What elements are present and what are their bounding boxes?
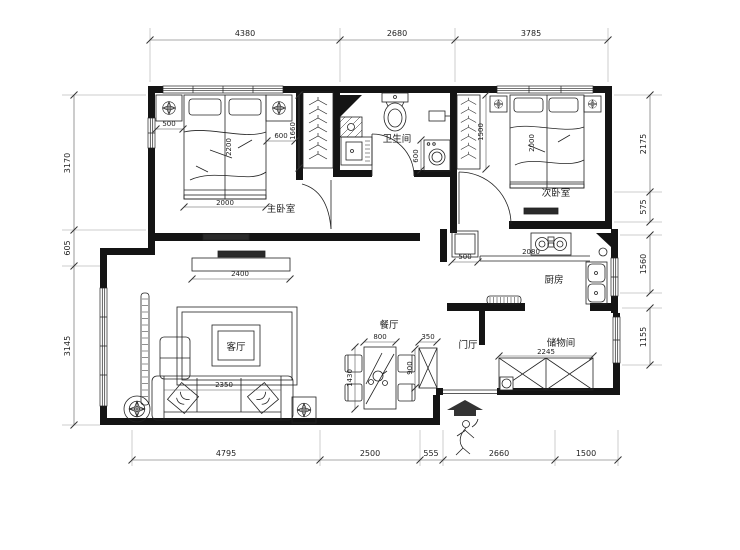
dim-master-wardrobe: 1660: [289, 122, 297, 140]
wall-entrance-left: [436, 388, 443, 395]
master-bedroom: [156, 92, 333, 240]
hanger-icon: [309, 97, 327, 105]
dim-washer: 600: [412, 149, 420, 162]
dim-secondary-bed: 2000: [528, 134, 536, 152]
dim-top-1: 4380: [235, 29, 255, 38]
kitchen-sink: [586, 262, 607, 304]
dim-kitchen-counter: 2080: [522, 248, 540, 256]
dim-dining-length: 1430: [346, 369, 354, 387]
counter-edge: [480, 256, 590, 261]
dim-master-bed-width: 2000: [216, 199, 234, 207]
window-master-north: [163, 86, 283, 93]
dim-left-1: 3170: [63, 153, 72, 173]
shower-corner: [340, 95, 362, 137]
nightstand-left: [490, 96, 507, 112]
dining-room: [345, 347, 437, 409]
wall-kitchen-west: [440, 229, 447, 262]
pillow: [514, 98, 543, 112]
dim-chain-top: [147, 28, 612, 82]
hanger-icon: [309, 142, 327, 150]
wall-corridor-south: [340, 233, 420, 241]
label-foyer: 门厅: [458, 339, 478, 351]
wall-bottom-right: [497, 388, 620, 395]
wall-entrance-step: [433, 395, 440, 425]
window-kitchen-east: [611, 258, 618, 296]
dim-top-3: 3785: [521, 29, 541, 38]
dim-bottom-5: 1500: [576, 449, 596, 458]
dim-left-3: 3145: [63, 336, 72, 356]
room-labels: 主卧室 卫生间 次卧室 厨房 客厅 餐厅 门厅 储物间: [226, 133, 575, 353]
wall-bath-east: [450, 93, 457, 233]
dim-bottom-3: 555: [423, 449, 438, 458]
ornament-rose-icon: [129, 401, 144, 416]
floor-plan-canvas: 4380 2680 3785 4795 2500 555 2660 1500 3…: [0, 0, 740, 550]
label-dining-room: 餐厅: [379, 319, 399, 331]
doors: [302, 134, 511, 455]
dim-foyer-cabinet-depth: 900: [406, 361, 414, 374]
wall-bottom-main: [100, 418, 440, 425]
hanger-icon: [461, 125, 476, 132]
label-living-room: 客厅: [226, 341, 246, 353]
dim-bottom-1: 4795: [216, 449, 236, 458]
master-tv: [203, 234, 249, 240]
dim-right-2: 575: [639, 199, 648, 214]
ornament-rose-icon: [273, 102, 286, 115]
living-tv: [218, 251, 265, 257]
secondary-bedroom: [457, 95, 601, 214]
dining-chairs: [345, 355, 415, 401]
hanger-icon: [309, 106, 327, 114]
hanger-icon: [461, 98, 476, 105]
label-bathroom: 卫生间: [383, 133, 412, 145]
storage-cabinets: [499, 358, 593, 390]
wall-secondary-south: [509, 221, 611, 229]
bathroom-sink: [341, 137, 372, 165]
sofa: [152, 337, 293, 420]
window-secondary-north: [497, 86, 593, 93]
dim-dining-width: 800: [373, 333, 386, 341]
window-storage-east: [613, 317, 620, 363]
sofa-pillow: [168, 383, 199, 414]
dim-sofa: 2350: [215, 381, 233, 389]
dim-left-2: 605: [63, 240, 72, 255]
label-master-bedroom: 主卧室: [267, 203, 296, 215]
ornament-rose-icon: [494, 100, 502, 108]
hanger-icon: [309, 115, 327, 123]
secondary-bed: [510, 95, 584, 188]
hanger-icon: [309, 124, 327, 132]
wall-bath-west: [333, 93, 340, 177]
pillow: [229, 99, 261, 115]
hanger-icon: [309, 151, 327, 159]
corner-cabinet: [596, 233, 611, 256]
hanger-icon: [461, 152, 476, 159]
wall-heater: [429, 111, 450, 121]
label-kitchen: 厨房: [544, 274, 563, 286]
foyer-cabinet: [419, 348, 437, 388]
entrance-figure-ornament: [456, 419, 478, 455]
dim-bottom-4: 2660: [489, 449, 509, 458]
master-wardrobe: [303, 92, 333, 168]
dim-secondary-wardrobe: 1500: [477, 123, 485, 141]
dim-tv-cabinet: 2400: [231, 270, 249, 278]
dining-table: [364, 347, 396, 409]
hanger-icon: [461, 134, 476, 141]
sofa-pillow: [248, 383, 279, 414]
dim-bottom-2: 2500: [360, 449, 380, 458]
pillow: [189, 99, 221, 115]
ornament-rose-icon: [163, 102, 176, 115]
dim-fridge: 500: [458, 253, 471, 261]
entrance-arrow-icon: [447, 400, 483, 416]
master-bedroom-door: [302, 180, 331, 229]
entrance-door: [443, 390, 497, 455]
dim-chain-bottom: [129, 430, 622, 466]
dim-storage-cabinet: 2245: [537, 348, 555, 356]
hanger-icon: [461, 143, 476, 150]
ornament-rose-icon: [297, 403, 310, 416]
label-storage-room: 储物间: [547, 337, 576, 349]
nightstand-right: [266, 95, 292, 121]
dim-top-2: 2680: [387, 29, 407, 38]
hanger-icon: [309, 133, 327, 141]
secondary-bedroom-door: [459, 172, 511, 224]
dim-chain-right: [614, 92, 662, 369]
floor-plan-page: 4380 2680 3785 4795 2500 555 2660 1500 3…: [0, 0, 740, 550]
kitchen: [452, 231, 611, 304]
pillow: [549, 98, 578, 112]
living-room: [124, 251, 316, 423]
ornament-rose-icon: [588, 100, 596, 108]
dim-nightstand-right: 600: [274, 132, 287, 140]
wall-bath-south-left: [333, 170, 372, 177]
toilet: [382, 93, 408, 131]
window-living-west: [100, 288, 107, 406]
dim-foyer-cabinet-width: 350: [421, 333, 434, 341]
hanger-icon: [461, 116, 476, 123]
wall-right-upper: [605, 93, 612, 229]
washing-machine: [424, 140, 450, 171]
nightstand-right: [584, 96, 601, 112]
hanger-icon: [461, 107, 476, 114]
dim-nightstand-left: 500: [162, 120, 175, 128]
wall-foyer-stub: [479, 311, 485, 345]
dim-right-1: 2175: [639, 134, 648, 154]
secondary-tv: [524, 208, 558, 214]
wall-left-upper: [148, 93, 155, 255]
dim-master-bed-length: 2200: [225, 138, 233, 156]
bathroom: [340, 93, 450, 171]
wall-left-step: [100, 248, 148, 255]
label-secondary-bedroom: 次卧室: [542, 187, 571, 199]
kitchen-radiator: [487, 296, 521, 304]
window-master-west: [148, 118, 155, 148]
living-radiator: [141, 293, 149, 405]
dim-right-4: 1155: [639, 327, 648, 347]
nightstand-left: [156, 95, 182, 121]
storage-room: [499, 358, 593, 390]
dim-right-3: 1560: [639, 254, 648, 274]
